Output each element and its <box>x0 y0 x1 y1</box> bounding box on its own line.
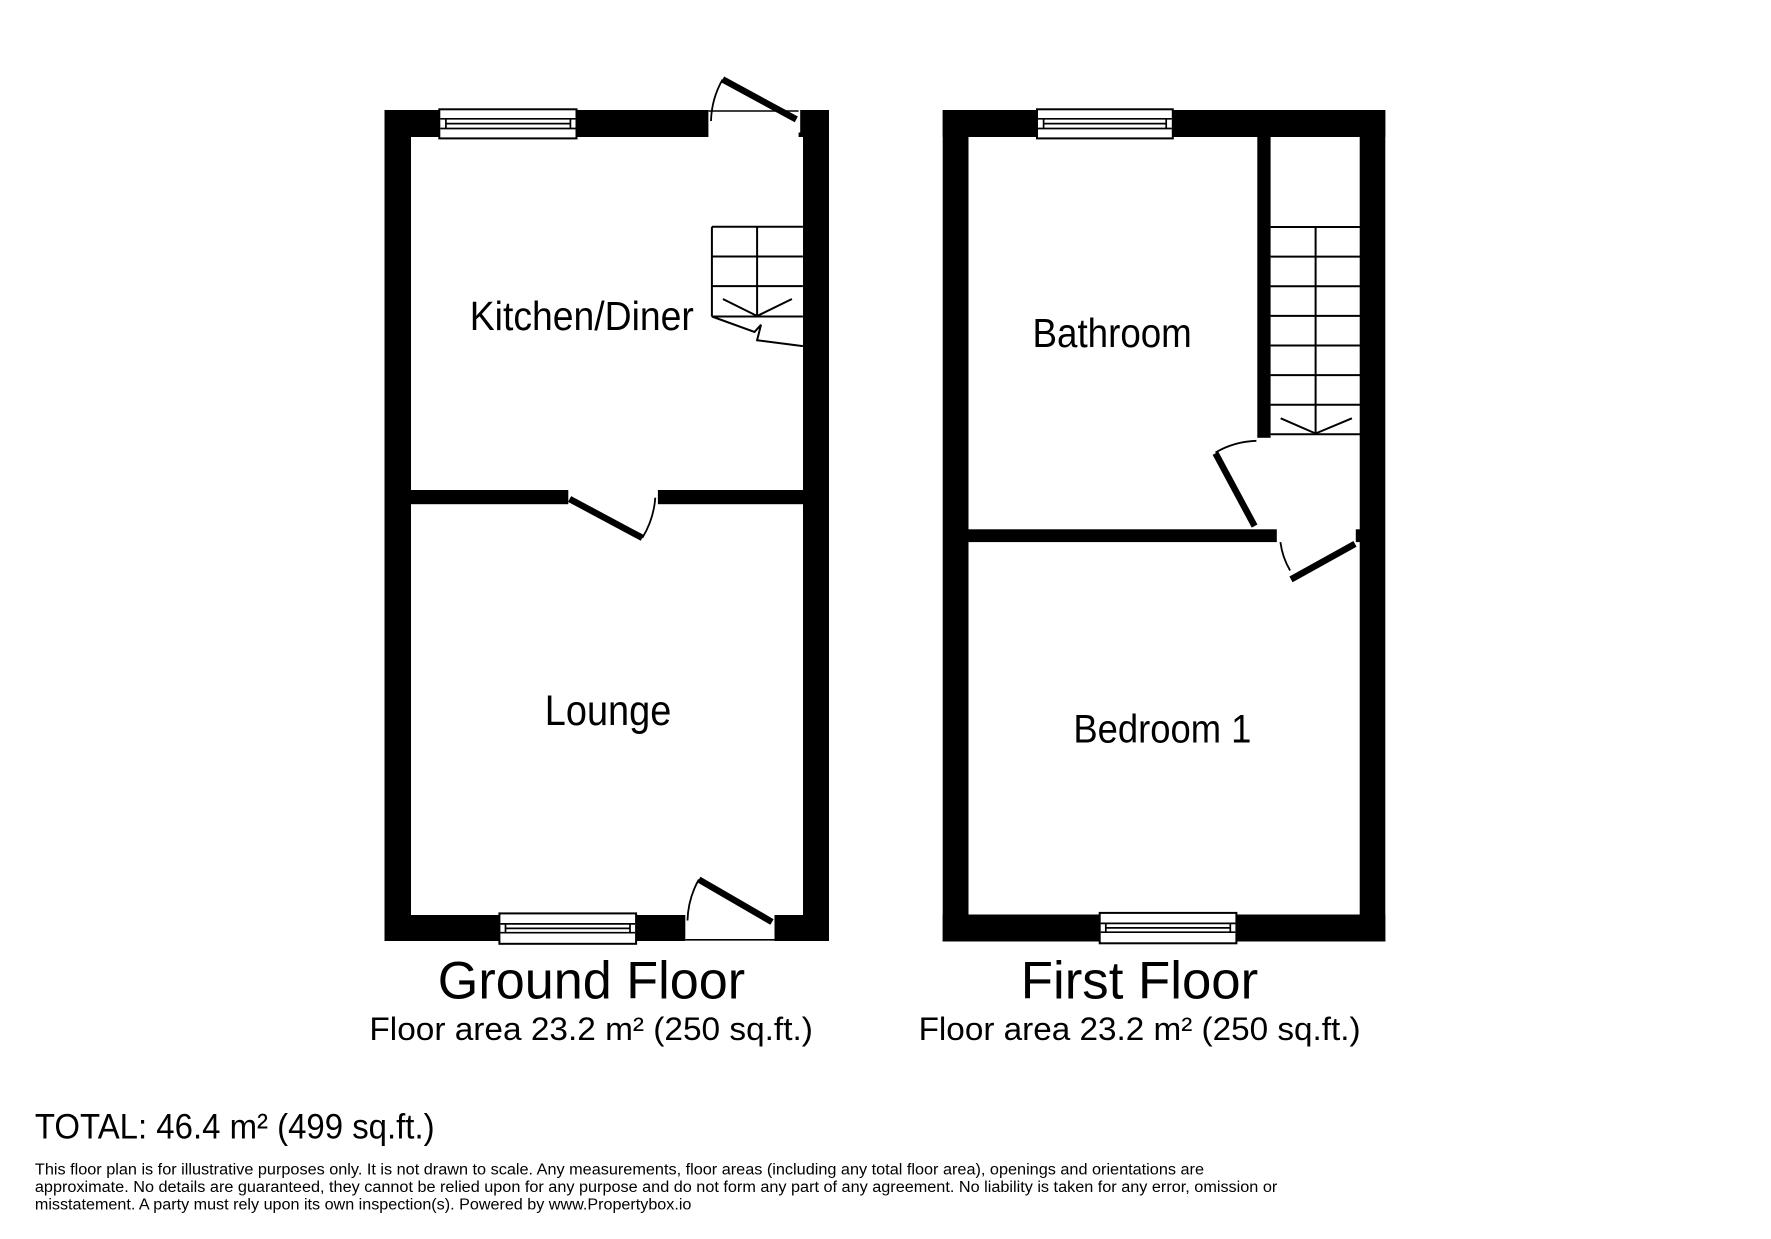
svg-text:TOTAL: 46.4 m² (499 sq.ft.): TOTAL: 46.4 m² (499 sq.ft.) <box>35 1108 435 1147</box>
svg-text:Kitchen/Diner: Kitchen/Diner <box>470 293 694 339</box>
svg-text:Floor area 23.2 m² (250 sq.ft.: Floor area 23.2 m² (250 sq.ft.) <box>369 1011 813 1047</box>
svg-text:Bedroom 1: Bedroom 1 <box>1073 708 1251 752</box>
svg-text:misstatement. A party must rel: misstatement. A party must rely upon its… <box>35 1196 692 1213</box>
svg-text:Lounge: Lounge <box>545 687 672 734</box>
svg-text:Floor area 23.2 m² (250 sq.ft.: Floor area 23.2 m² (250 sq.ft.) <box>919 1011 1361 1047</box>
svg-text:Ground Floor: Ground Floor <box>438 952 745 1011</box>
svg-text:First Floor: First Floor <box>1021 952 1258 1011</box>
svg-text:Bathroom: Bathroom <box>1033 310 1192 356</box>
svg-text:approximate. No details are gu: approximate. No details are guaranteed, … <box>35 1179 1277 1196</box>
svg-text:This floor plan is for illustr: This floor plan is for illustrative purp… <box>35 1162 1204 1179</box>
